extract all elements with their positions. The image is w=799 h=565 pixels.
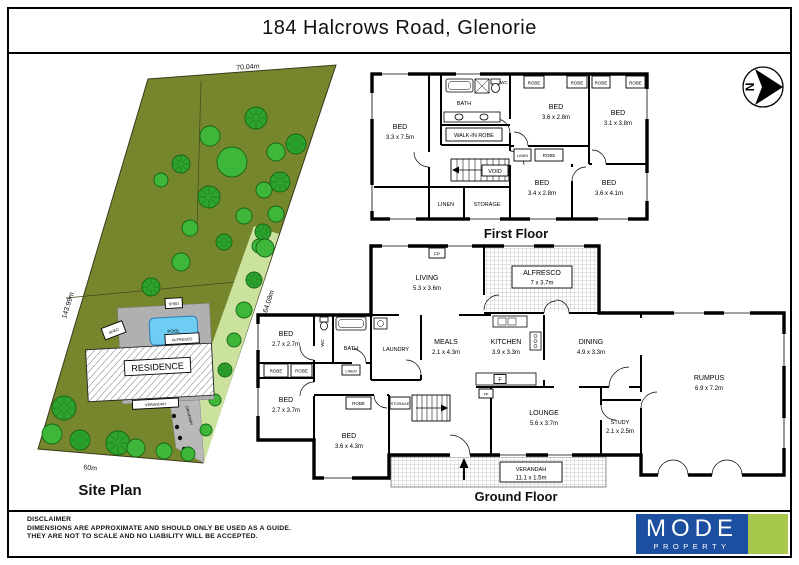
first-floor-caption: First Floor — [436, 226, 596, 241]
gf-fp-label: FP — [434, 252, 440, 257]
gf-wc-label: WC — [320, 339, 325, 347]
disclaimer-title: DISCLAIMER — [27, 516, 291, 525]
gf-laundry-label: LAUNDRY — [383, 347, 410, 353]
tree-icon — [236, 302, 252, 318]
logo-green-block — [748, 514, 788, 554]
gf-robe-label: ROBE — [352, 401, 365, 406]
ff-bed5-name: BED — [602, 180, 616, 187]
gf-alfresco-name: ALFRESCO — [523, 270, 561, 277]
tree-icon — [267, 143, 285, 161]
gf-dining-dims: 4.9 x 3.3m — [577, 350, 605, 356]
tree-icon — [200, 126, 220, 146]
ff-robe-label: ROBE — [629, 81, 642, 86]
ff-bed4-name: BED — [535, 180, 549, 187]
shrub-icon — [178, 436, 182, 440]
gf-bed3-dims: 3.6 x 4.3m — [335, 444, 363, 450]
gf-bath-label: BATH — [344, 346, 358, 352]
gf-stairs — [412, 395, 450, 421]
shrub-icon — [172, 414, 176, 418]
gf-rumpus-dims: 6.9 x 7.2m — [695, 386, 723, 392]
tree-icon — [154, 173, 168, 187]
gf-study-name: STUDY — [611, 420, 630, 426]
gf-living-dims: 5.3 x 3.6m — [413, 286, 441, 292]
ground-floor-plan: LIVING 5.3 x 3.6m FP ALFRESCO 7 x 3.7m B… — [254, 240, 790, 492]
tree-icon — [182, 220, 198, 236]
gf-verandah-name: VERANDAH — [516, 467, 547, 473]
pool-label: POOL — [167, 328, 180, 334]
ground-floor-caption: Ground Floor — [436, 489, 596, 504]
gf-alfresco-dims: 7 x 3.7m — [530, 281, 553, 287]
gf-kitchen-name: KITCHEN — [491, 339, 522, 346]
shed-2: SHED — [165, 298, 183, 309]
title-divider — [9, 52, 790, 54]
ff-bath-label: BATH — [457, 101, 471, 107]
ff-bed3-name: BED — [611, 110, 625, 117]
ff-bed2-dims: 3.6 x 2.8m — [542, 115, 570, 121]
tree-icon — [227, 333, 241, 347]
ff-wc-label: WC — [500, 80, 508, 85]
ff-void-label: VOID — [488, 169, 501, 175]
ff-bed2-name: BED — [549, 104, 563, 111]
gf-rumpus-name: RUMPUS — [694, 375, 725, 382]
gf-meals-name: MEALS — [434, 339, 458, 346]
ff-robe-label: ROBE — [595, 81, 608, 86]
gf-study-dims: 2.1 x 2.5m — [606, 429, 634, 435]
tree-icon — [181, 447, 195, 461]
tree-icon — [172, 253, 190, 271]
logo-name: MODE — [636, 516, 748, 542]
verandah-hatch — [391, 457, 606, 487]
gf-linen-label: LINEN — [345, 370, 356, 374]
gf-bed2-name: BED — [279, 397, 293, 404]
north-label: N — [743, 83, 757, 92]
logo: MODE PROPERTY — [636, 514, 748, 554]
ff-bed1-dims: 3.3 x 7.5m — [386, 135, 414, 141]
dim-left: 143.99m — [61, 291, 76, 319]
gf-lounge-dims: 5.6 x 3.7m — [530, 421, 558, 427]
ff-robe-label: ROBE — [528, 81, 541, 86]
ff-wir-label: WALK-IN ROBE — [454, 133, 494, 139]
tree-icon — [256, 182, 272, 198]
disclaimer-line2: THEY ARE NOT TO SCALE AND NO LIABILITY W… — [27, 533, 291, 542]
gf-kitchen-dims: 3.9 x 3.3m — [492, 350, 520, 356]
tree-icon — [217, 147, 247, 177]
ff-linen-label: LINEN — [438, 202, 454, 208]
logo-subtitle: PROPERTY — [636, 542, 748, 551]
disclaimer-line1: DIMENSIONS ARE APPROXIMATE AND SHOULD ON… — [27, 525, 291, 534]
ff-bed1-name: BED — [393, 124, 407, 131]
page-title: 184 Halcrows Road, Glenorie — [0, 17, 799, 40]
first-floor-plan: BED 3.3 x 7.5m BATH WC WALK-IN ROBE ROBE… — [364, 67, 656, 227]
gf-bed1-dims: 2.7 x 2.7m — [272, 342, 300, 348]
shed-2-label: SHED — [168, 302, 179, 307]
gf-storage-label: STORAGE — [391, 402, 410, 406]
site-plan-caption: Site Plan — [45, 482, 175, 499]
disclaimer: DISCLAIMER DIMENSIONS ARE APPROXIMATE AN… — [27, 516, 291, 542]
tree-icon — [268, 206, 284, 222]
shrub-icon — [175, 425, 179, 429]
gf-robe-label: ROBE — [295, 369, 308, 374]
ff-bed4-dims: 3.4 x 2.8m — [528, 191, 556, 197]
tree-icon — [42, 424, 62, 444]
tree-icon — [236, 208, 252, 224]
gf-robe-label: ROBE — [270, 369, 283, 374]
ff-linen-box-label: LINEN — [517, 154, 528, 158]
gf-bed1-name: BED — [279, 331, 293, 338]
tree-icon — [127, 439, 145, 457]
ff-bed3-dims: 3.1 x 3.8m — [604, 121, 632, 127]
dim-bottom: 60m — [83, 464, 97, 472]
gf-bed2-dims: 2.7 x 3.7m — [272, 408, 300, 414]
gf-fp-lounge-label: FP — [484, 393, 489, 397]
gf-meals-dims: 2.1 x 4.3m — [432, 350, 460, 356]
gf-living-name: LIVING — [416, 275, 439, 282]
floorplan-sheet: 184 Halcrows Road, Glenorie N DRIVEWAY P… — [0, 0, 799, 565]
gf-bed3-name: BED — [342, 433, 356, 440]
tree-icon — [200, 424, 212, 436]
gf-lounge-name: LOUNGE — [529, 410, 559, 417]
ff-robe-label: ROBE — [543, 153, 556, 158]
north-arrow-icon: N — [738, 62, 788, 112]
ff-bed5-dims: 3.6 x 4.1m — [595, 191, 623, 197]
gf-verandah-dims: 11.1 x 1.5m — [516, 476, 547, 482]
gf-dining-name: DINING — [579, 339, 604, 346]
ff-storage-label: STORAGE — [474, 202, 501, 208]
ff-robe-label: ROBE — [571, 81, 584, 86]
tree-icon — [156, 443, 172, 459]
